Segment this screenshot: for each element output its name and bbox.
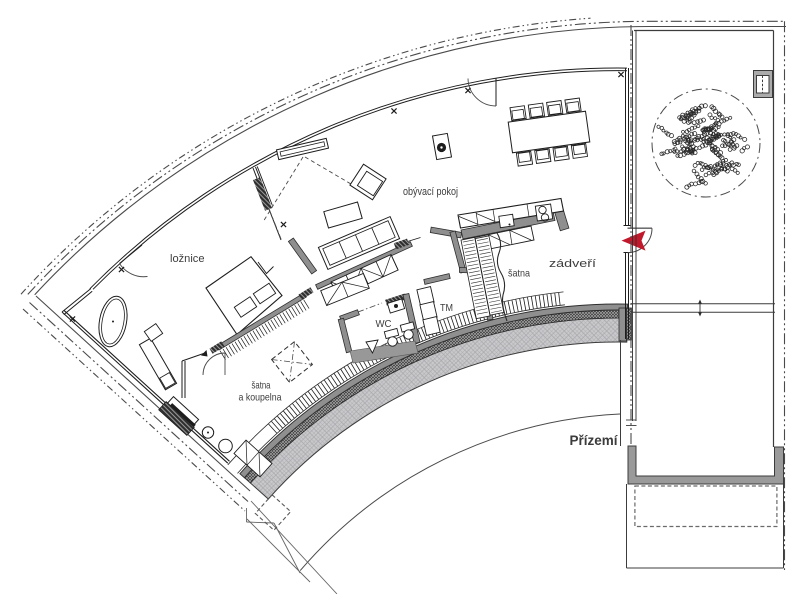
svg-text:obývací pokoj: obývací pokoj [403, 186, 458, 198]
svg-text:TM: TM [440, 302, 453, 314]
svg-text:šatna: šatna [508, 268, 530, 280]
svg-text:zádveří: zádveří [549, 258, 596, 270]
svg-text:WC: WC [376, 318, 392, 330]
svg-text:šatna: šatna [252, 380, 271, 392]
svg-text:Přízemí: Přízemí [570, 432, 619, 448]
svg-text:ložnice: ložnice [170, 253, 205, 265]
svg-text:a koupelna: a koupelna [239, 392, 282, 404]
